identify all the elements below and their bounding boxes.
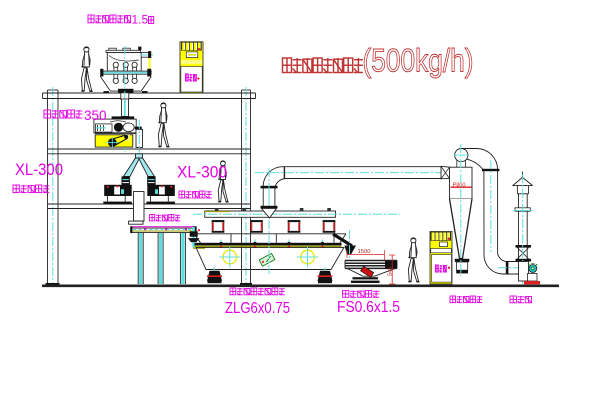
svg-text:350: 350	[84, 108, 107, 123]
svg-text:XL-300: XL-300	[177, 164, 227, 182]
svg-text:1.5: 1.5	[132, 13, 149, 27]
svg-text:FS0.6x1.5: FS0.6x1.5	[337, 299, 400, 316]
svg-text:P800: P800	[453, 183, 466, 189]
svg-text:(500kg/h): (500kg/h)	[363, 43, 474, 79]
svg-text:1500: 1500	[358, 249, 371, 255]
svg-text:545: 545	[388, 267, 394, 276]
svg-text:XL-300: XL-300	[15, 161, 63, 179]
svg-text:ZLG6x0.75: ZLG6x0.75	[225, 300, 290, 317]
